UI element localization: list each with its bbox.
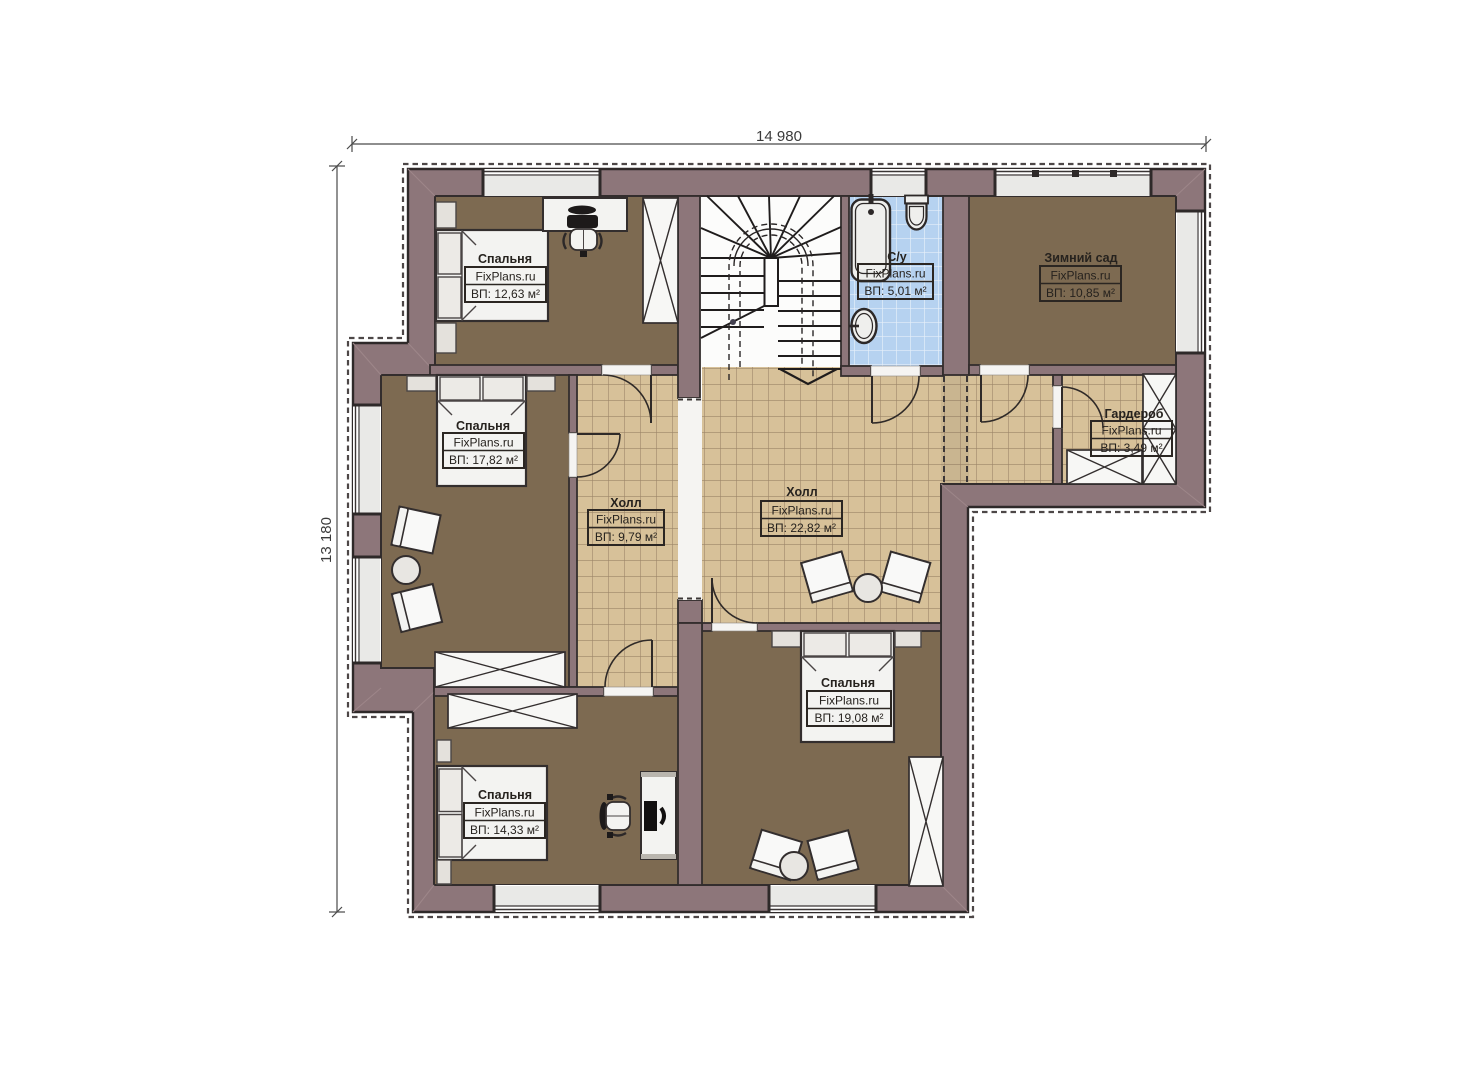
svg-text:FixPlans.ru: FixPlans.ru bbox=[474, 806, 534, 820]
svg-text:Спальня: Спальня bbox=[478, 788, 532, 802]
svg-text:Зимний сад: Зимний сад bbox=[1044, 251, 1117, 265]
svg-text:ВП: 9,79 м²: ВП: 9,79 м² bbox=[595, 530, 657, 544]
svg-text:FixPlans.ru: FixPlans.ru bbox=[1050, 269, 1110, 283]
svg-text:FixPlans.ru: FixPlans.ru bbox=[596, 513, 656, 527]
svg-text:14 980: 14 980 bbox=[756, 128, 802, 145]
svg-text:FixPlans.ru: FixPlans.ru bbox=[771, 504, 831, 518]
svg-text:ВП: 12,63 м²: ВП: 12,63 м² bbox=[471, 287, 540, 301]
svg-text:Спальня: Спальня bbox=[456, 419, 510, 433]
svg-text:Спальня: Спальня bbox=[821, 676, 875, 690]
svg-text:FixPlans.ru: FixPlans.ru bbox=[1101, 424, 1161, 438]
svg-text:ВП: 10,85 м²: ВП: 10,85 м² bbox=[1046, 286, 1115, 300]
svg-text:ВП: 14,33 м²: ВП: 14,33 м² bbox=[470, 823, 539, 837]
svg-text:Гардероб: Гардероб bbox=[1104, 407, 1163, 421]
svg-text:С/у: С/у bbox=[887, 250, 907, 264]
svg-text:ВП: 3,49 м²: ВП: 3,49 м² bbox=[1100, 441, 1162, 455]
svg-text:13 180: 13 180 bbox=[318, 517, 335, 563]
svg-text:FixPlans.ru: FixPlans.ru bbox=[819, 694, 879, 708]
svg-text:ВП: 22,82 м²: ВП: 22,82 м² bbox=[767, 521, 836, 535]
svg-text:ВП: 19,08 м²: ВП: 19,08 м² bbox=[815, 711, 884, 725]
svg-text:Холл: Холл bbox=[610, 496, 641, 510]
svg-text:Холл: Холл bbox=[786, 485, 817, 499]
svg-text:Спальня: Спальня bbox=[478, 252, 532, 266]
svg-text:FixPlans.ru: FixPlans.ru bbox=[453, 436, 513, 450]
svg-text:ВП: 5,01 м²: ВП: 5,01 м² bbox=[864, 284, 926, 298]
svg-text:FixPlans.ru: FixPlans.ru bbox=[475, 270, 535, 284]
svg-text:FixPlans.ru: FixPlans.ru bbox=[865, 267, 925, 281]
svg-text:ВП: 17,82 м²: ВП: 17,82 м² bbox=[449, 453, 518, 467]
